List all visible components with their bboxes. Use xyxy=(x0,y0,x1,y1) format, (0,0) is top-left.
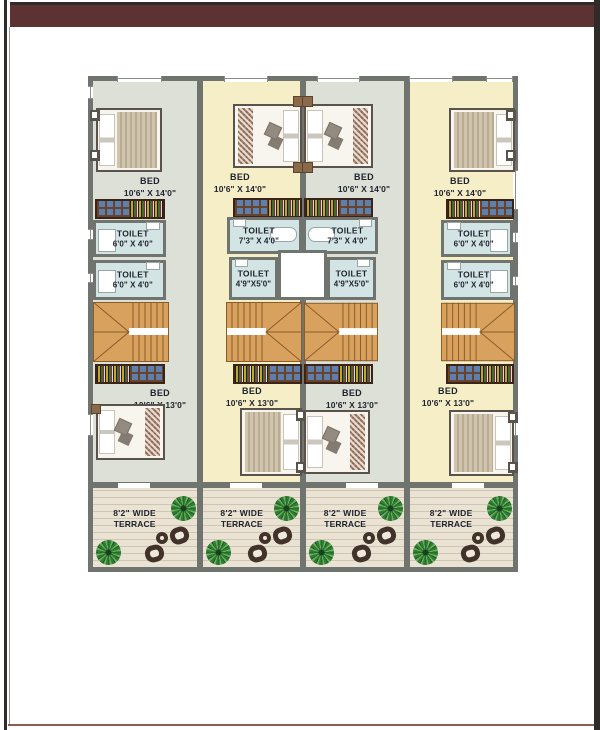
window xyxy=(317,76,360,82)
door-leaf-icon xyxy=(235,259,248,267)
toilet-1-label-unit-4: TOILET6'0" X 4'0" xyxy=(454,228,494,249)
bed-top-label-unit-4: BED10'6" X 14'0" xyxy=(434,176,486,199)
bed-top-label-unit-3: BED10'6" X 14'0" xyxy=(338,172,390,195)
bed-bottom-unit-2 xyxy=(240,408,302,476)
window xyxy=(486,76,513,82)
staircase-unit-3 xyxy=(304,302,378,362)
nightstand-icon xyxy=(90,110,100,121)
toilet-1-unit-4: TOILET6'0" X 4'0" xyxy=(441,220,513,257)
wardrobe-2-unit-4 xyxy=(446,364,514,384)
window xyxy=(513,276,518,286)
bed-bottom-label-unit-2: BED10'6" X 13'0" xyxy=(226,386,278,409)
toilet-2-label-unit-1: TOILET6'0" X 4'0" xyxy=(113,269,153,290)
wardrobe-unit-1 xyxy=(95,199,165,219)
window xyxy=(409,76,453,82)
duct-void xyxy=(278,250,327,300)
wardrobe-2-unit-1 xyxy=(95,364,165,384)
wall-segment xyxy=(404,80,410,568)
toilet-2-unit-1: TOILET6'0" X 4'0" xyxy=(93,260,166,300)
left-inner-border-line xyxy=(9,27,10,725)
bottom-border-line xyxy=(8,724,594,726)
door-opening xyxy=(118,483,150,488)
wardrobe-unit-2 xyxy=(233,198,302,218)
bed-bottom-label-unit-4: BED10'6" X 13'0" xyxy=(422,386,474,409)
bed-bottom-unit-1 xyxy=(96,404,165,460)
nightstand-icon xyxy=(506,110,516,121)
bed-top-label-unit-2: BED10'6" X 14'0" xyxy=(214,172,266,195)
window xyxy=(513,232,518,243)
window xyxy=(224,76,268,82)
nightstand-icon xyxy=(508,462,518,473)
side-table-icon xyxy=(302,96,313,107)
bed-top-unit-1 xyxy=(96,108,162,172)
right-border-bar xyxy=(594,0,600,730)
nightstand-icon xyxy=(508,412,518,423)
nightstand-icon xyxy=(506,150,516,161)
door-opening xyxy=(346,483,378,488)
nightstand-icon xyxy=(90,150,100,161)
toilet-2-unit-4: TOILET6'0" X 4'0" xyxy=(441,260,513,300)
staircase-unit-4 xyxy=(441,302,515,362)
bed-bottom-unit-3 xyxy=(304,410,370,474)
toilet-2-label-unit-2: TOILET4'9"X5'0" xyxy=(236,268,271,289)
window xyxy=(88,414,93,436)
side-table-icon xyxy=(302,162,313,173)
left-border-line xyxy=(4,0,7,730)
toilet-1-label-unit-2: TOILET7'3" X 4'0" xyxy=(239,225,279,246)
toilet-1-unit-3: TOILET7'3" X 4'0" xyxy=(303,217,378,254)
bed-top-unit-2 xyxy=(233,104,302,168)
staircase-unit-2 xyxy=(226,302,302,362)
wardrobe-unit-3 xyxy=(304,198,373,218)
bed-top-label-unit-1: BED10'6" X 14'0" xyxy=(124,176,176,199)
toilet-2-unit-3: TOILET4'9"X5'0" xyxy=(327,257,376,300)
door-opening xyxy=(230,483,262,488)
wall-segment xyxy=(197,80,203,568)
side-table-icon xyxy=(91,404,101,414)
toilet-1-label-unit-1: TOILET6'0" X 4'0" xyxy=(113,228,153,249)
wardrobe-2-unit-2 xyxy=(233,364,302,384)
toilet-1-unit-2: TOILET7'3" X 4'0" xyxy=(227,217,302,254)
window xyxy=(117,76,162,82)
bed-bottom-unit-4 xyxy=(449,410,514,476)
wardrobe-2-unit-3 xyxy=(304,364,373,384)
toilet-2-label-unit-3: TOILET4'9"X5'0" xyxy=(334,268,369,289)
window xyxy=(88,86,93,99)
toilet-1-label-unit-3: TOILET7'3" X 4'0" xyxy=(327,225,367,246)
door-leaf-icon xyxy=(357,259,370,267)
toilet-2-unit-2: TOILET4'9"X5'0" xyxy=(229,257,278,300)
wardrobe-unit-4 xyxy=(446,199,514,219)
bed-bottom-label-unit-3: BED10'6" X 13'0" xyxy=(326,388,378,411)
door-opening xyxy=(452,483,484,488)
top-accent-bar xyxy=(10,2,595,27)
toilet-1-unit-1: TOILET6'0" X 4'0" xyxy=(93,220,166,257)
bed-top-unit-3 xyxy=(304,104,373,168)
toilet-2-label-unit-4: TOILET6'0" X 4'0" xyxy=(454,269,494,290)
floor-plan-page: 8'2" WIDETERRACE 8'2" WIDETERRACE 8'2" W… xyxy=(0,0,600,730)
staircase-unit-1 xyxy=(93,302,169,362)
